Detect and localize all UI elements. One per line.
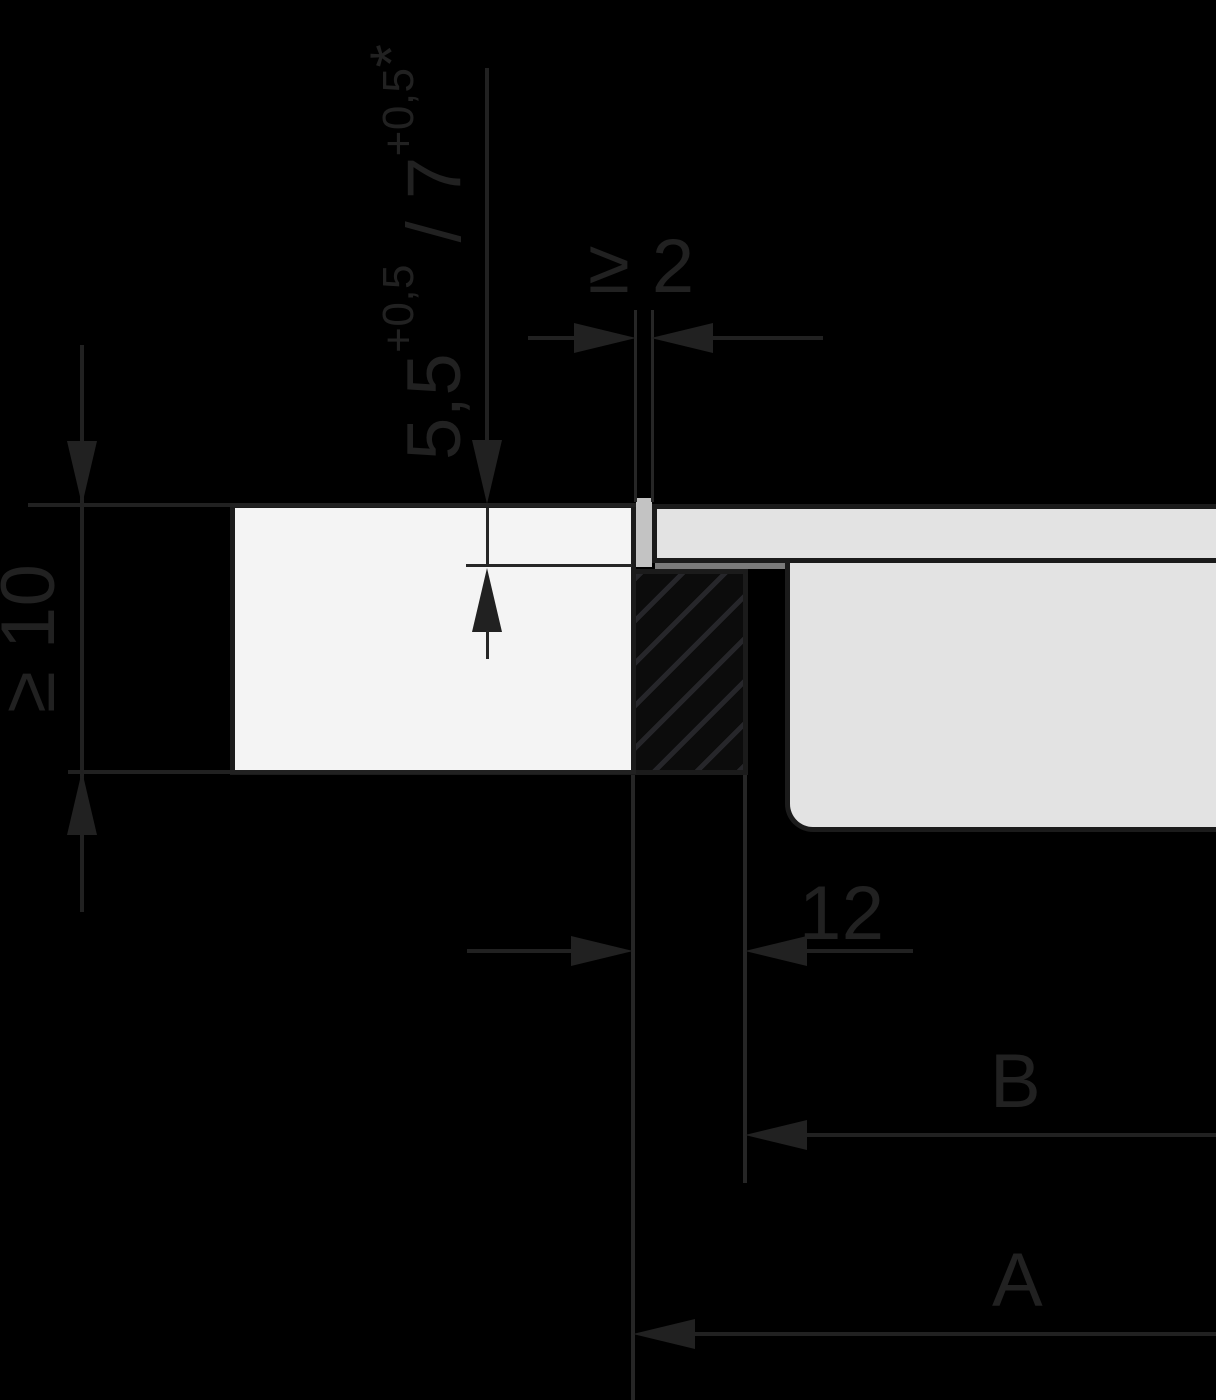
ledge-offset-label: 12	[799, 876, 885, 952]
arrow-down-icon	[67, 441, 97, 505]
recess-depth-tolerance-2: +0,5	[374, 67, 423, 156]
extension-line	[28, 503, 636, 507]
countertop-cross-section	[230, 503, 636, 775]
ref-b-label: B	[990, 1044, 1041, 1120]
recess-depth-label: 5,5+0,5 / 7+0,5*	[392, 44, 473, 460]
recess-depth-separator: /	[392, 199, 477, 264]
dimension-line	[528, 336, 576, 340]
extension-line-cutout-edge	[631, 775, 635, 1400]
dimension-line	[485, 68, 489, 442]
recess-depth-value-1: 5,5	[392, 353, 477, 460]
extension-line	[68, 770, 636, 774]
dimension-line	[713, 336, 823, 340]
arrow-left-icon	[651, 323, 713, 353]
arrow-right-icon	[571, 936, 633, 966]
arrow-up-icon	[67, 771, 97, 835]
countertop-thickness-label: ≥ 10	[0, 564, 67, 713]
dimension-line	[467, 949, 573, 953]
arrow-up-icon	[472, 568, 502, 632]
installation-diagram: 5,5+0,5 / 7+0,5* ≥ 2 ≥ 10 12 B	[0, 0, 1216, 1400]
joint-gap-label: ≥ 2	[588, 229, 695, 305]
recess-depth-value-2: 7	[392, 156, 477, 199]
hob-housing	[785, 558, 1216, 832]
dimension-line	[806, 1133, 1216, 1137]
hob-glass-panel	[652, 504, 1216, 563]
recess-reference-line	[466, 564, 632, 567]
dimension-line	[486, 630, 489, 659]
support-batten-hatched	[631, 569, 748, 775]
arrow-right-icon	[574, 323, 636, 353]
dimension-line	[694, 1332, 1216, 1336]
footnote-asterisk: *	[358, 44, 425, 68]
ref-a-label: A	[992, 1243, 1043, 1319]
arrow-left-icon	[633, 1319, 695, 1349]
dimension-line	[486, 508, 489, 566]
arrow-left-icon	[745, 936, 807, 966]
recess-depth-tolerance-1: +0,5	[374, 264, 423, 353]
arrow-left-icon	[745, 1120, 807, 1150]
joint-gap-filler	[636, 498, 652, 567]
